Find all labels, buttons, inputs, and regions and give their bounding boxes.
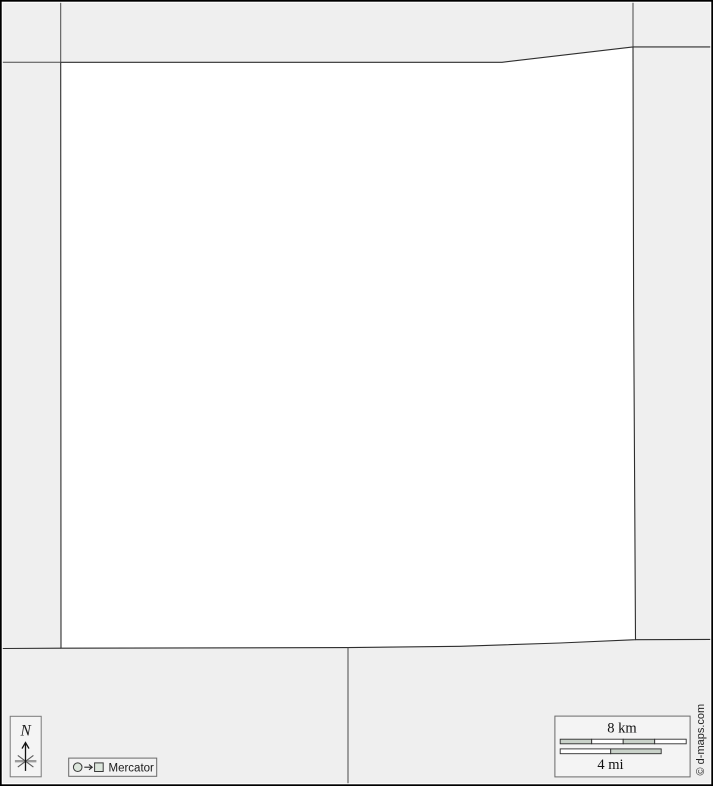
svg-text:8 km: 8 km (607, 721, 637, 737)
svg-text:Mercator: Mercator (109, 762, 155, 774)
svg-text:4 mi: 4 mi (597, 757, 623, 773)
svg-text:N: N (20, 723, 33, 740)
svg-text:© d-maps.com: © d-maps.com (695, 704, 707, 776)
